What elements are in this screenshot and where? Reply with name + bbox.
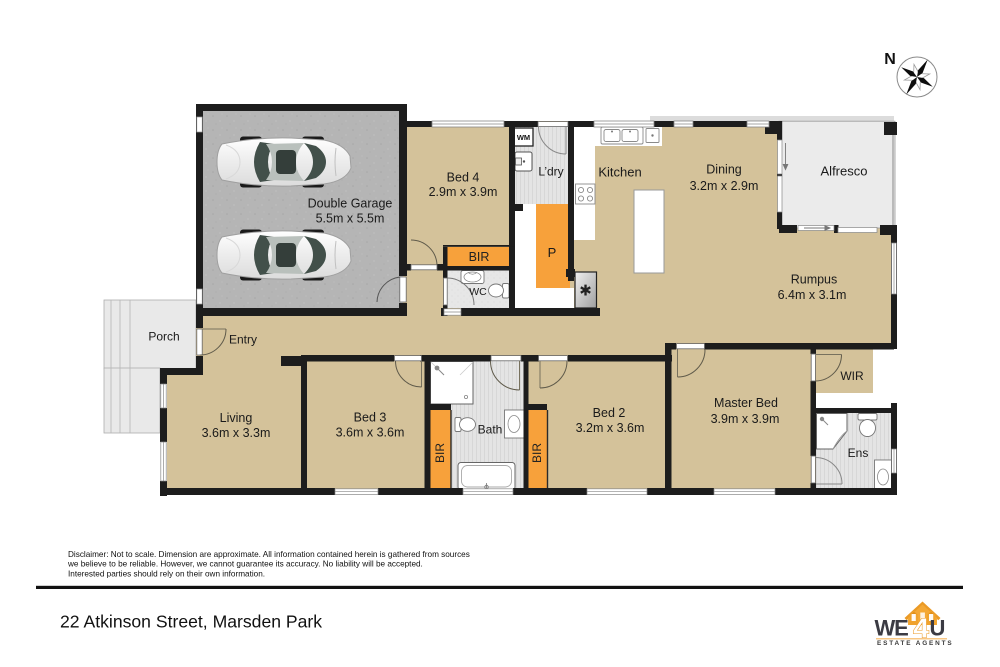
- svg-text:Porch: Porch: [148, 330, 179, 344]
- svg-text:Entry: Entry: [229, 333, 257, 347]
- svg-text:P: P: [548, 245, 557, 260]
- svg-text:Dining: Dining: [706, 163, 741, 177]
- svg-text:U: U: [930, 616, 946, 641]
- svg-text:Bath: Bath: [478, 423, 503, 437]
- svg-text:L’dry: L’dry: [538, 165, 563, 179]
- svg-text:Alfresco: Alfresco: [821, 164, 868, 179]
- svg-text:22 Atkinson Street, Marsden Pa: 22 Atkinson Street, Marsden Park: [60, 612, 322, 632]
- svg-text:2.9m x 3.9m: 2.9m x 3.9m: [429, 185, 498, 199]
- svg-text:Bed 2: Bed 2: [593, 406, 626, 420]
- svg-text:BIR: BIR: [469, 250, 490, 264]
- svg-text:BIR: BIR: [530, 443, 544, 463]
- svg-text:Disclaimer: Not to scale. Dime: Disclaimer: Not to scale. Dimension are …: [68, 550, 470, 559]
- svg-text:Rumpus: Rumpus: [791, 273, 838, 287]
- svg-text:WM: WM: [517, 133, 530, 142]
- svg-text:Kitchen: Kitchen: [598, 165, 641, 180]
- svg-text:Living: Living: [220, 411, 253, 425]
- svg-text:N: N: [884, 51, 896, 68]
- svg-text:we believe to be reliable. How: we believe to be reliable. However, we c…: [67, 560, 423, 569]
- svg-text:Master Bed: Master Bed: [714, 396, 778, 410]
- svg-text:3.6m x 3.3m: 3.6m x 3.3m: [202, 426, 271, 440]
- svg-text:WC: WC: [469, 286, 487, 298]
- svg-text:Bed 3: Bed 3: [354, 411, 387, 425]
- svg-text:3.2m x 3.6m: 3.2m x 3.6m: [576, 421, 645, 435]
- svg-text:ESTATE AGENTS: ESTATE AGENTS: [877, 640, 953, 647]
- svg-text:Interested parties should rely: Interested parties should rely on their …: [68, 569, 265, 578]
- svg-text:Double Garage: Double Garage: [308, 197, 393, 211]
- svg-text:✱: ✱: [579, 283, 592, 300]
- svg-text:3.2m x 2.9m: 3.2m x 2.9m: [690, 179, 759, 193]
- svg-text:3.6m x 3.6m: 3.6m x 3.6m: [336, 426, 405, 440]
- svg-text:Bed 4: Bed 4: [447, 171, 480, 185]
- svg-text:6.4m x 3.1m: 6.4m x 3.1m: [778, 288, 847, 302]
- svg-text:WE: WE: [875, 616, 909, 641]
- svg-text:WIR: WIR: [840, 369, 864, 383]
- svg-text:Ens: Ens: [848, 446, 869, 460]
- svg-text:5.5m x 5.5m: 5.5m x 5.5m: [316, 212, 385, 226]
- svg-text:3.9m x 3.9m: 3.9m x 3.9m: [711, 412, 780, 426]
- svg-text:BIR: BIR: [433, 443, 447, 463]
